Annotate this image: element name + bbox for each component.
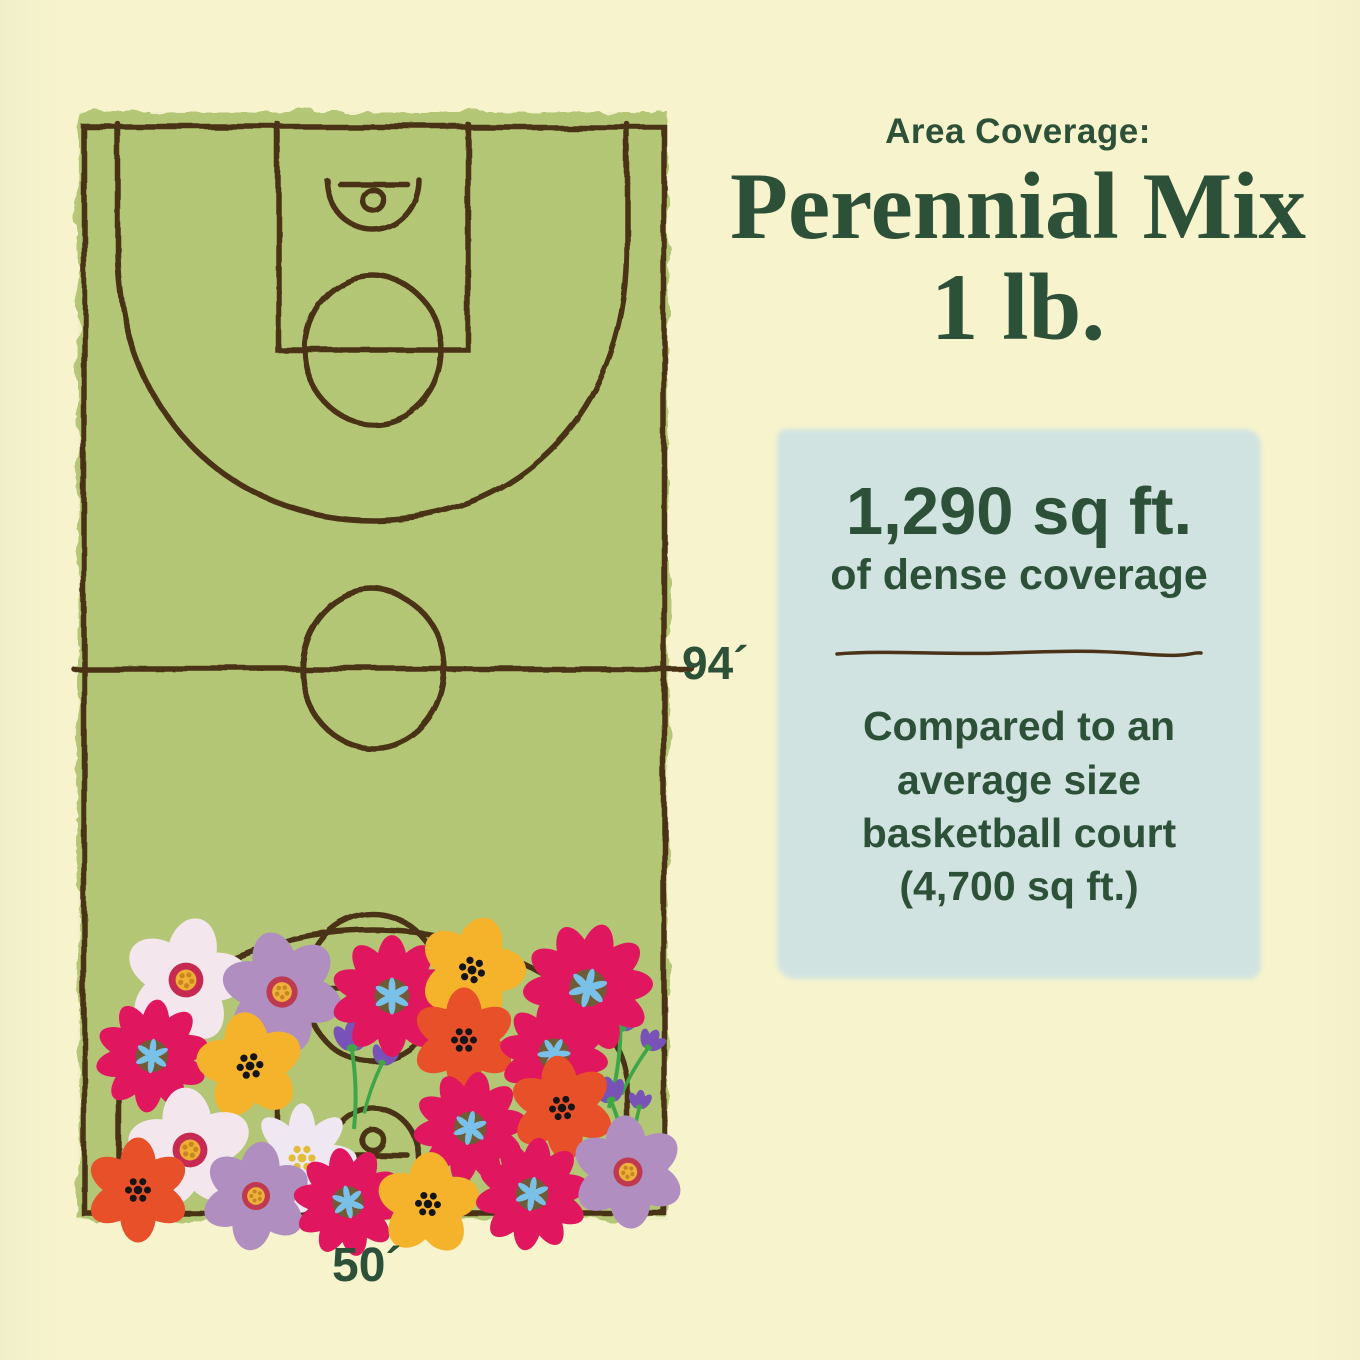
comparison-line-1: Compared to an bbox=[780, 700, 1258, 753]
comparison-line-2: average size bbox=[780, 754, 1258, 807]
infographic: 94´ 50´ Area Coverage: Perennial Mix 1 l… bbox=[0, 0, 1360, 1360]
court-length-label: 94´ bbox=[682, 636, 748, 690]
comparison-line-4: (4,700 sq ft.) bbox=[780, 860, 1258, 913]
coverage-card: 1,290 sq ft. of dense coverage Compared … bbox=[780, 432, 1258, 976]
coverage-amount: 1,290 sq ft. bbox=[780, 478, 1258, 545]
title-line-2: 1 lb. bbox=[675, 257, 1360, 358]
court-width-label: 50´ bbox=[332, 1238, 401, 1293]
header: Area Coverage: Perennial Mix 1 lb. bbox=[675, 112, 1360, 357]
page-title: Perennial Mix 1 lb. bbox=[675, 156, 1360, 357]
eyebrow-label: Area Coverage: bbox=[675, 112, 1360, 152]
card-content: 1,290 sq ft. of dense coverage Compared … bbox=[780, 432, 1258, 914]
title-line-1: Perennial Mix bbox=[675, 156, 1360, 257]
hand-drawn-divider bbox=[833, 646, 1205, 660]
coverage-subhead: of dense coverage bbox=[780, 551, 1258, 600]
comparison-line-3: basketball court bbox=[780, 807, 1258, 860]
comparison-text: Compared to an average size basketball c… bbox=[780, 700, 1258, 913]
basketball-court-illustration bbox=[0, 0, 760, 1360]
